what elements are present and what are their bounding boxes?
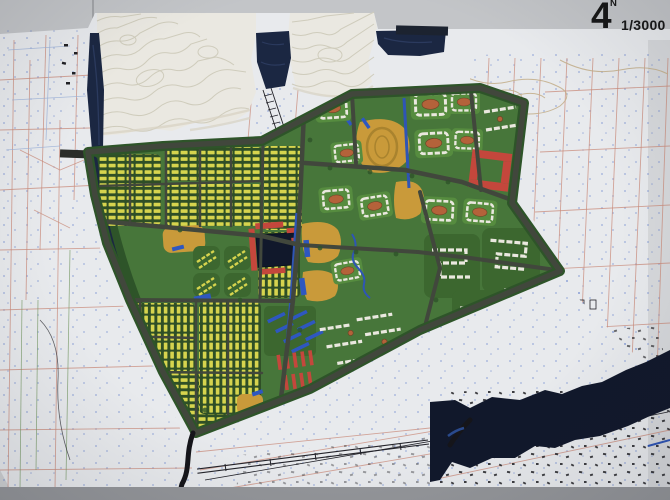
master-plan-photo: N 4 1/3000 (0, 0, 670, 500)
dam-bar (396, 25, 448, 35)
map-graphic (0, 0, 670, 500)
table-shadow (0, 487, 670, 500)
blue-slab-housing (264, 306, 324, 356)
figure-number: 4 (591, 0, 612, 34)
north-arrow: N 4 1/3000 (588, 0, 668, 40)
scale-label: 1/3000 (621, 17, 666, 33)
